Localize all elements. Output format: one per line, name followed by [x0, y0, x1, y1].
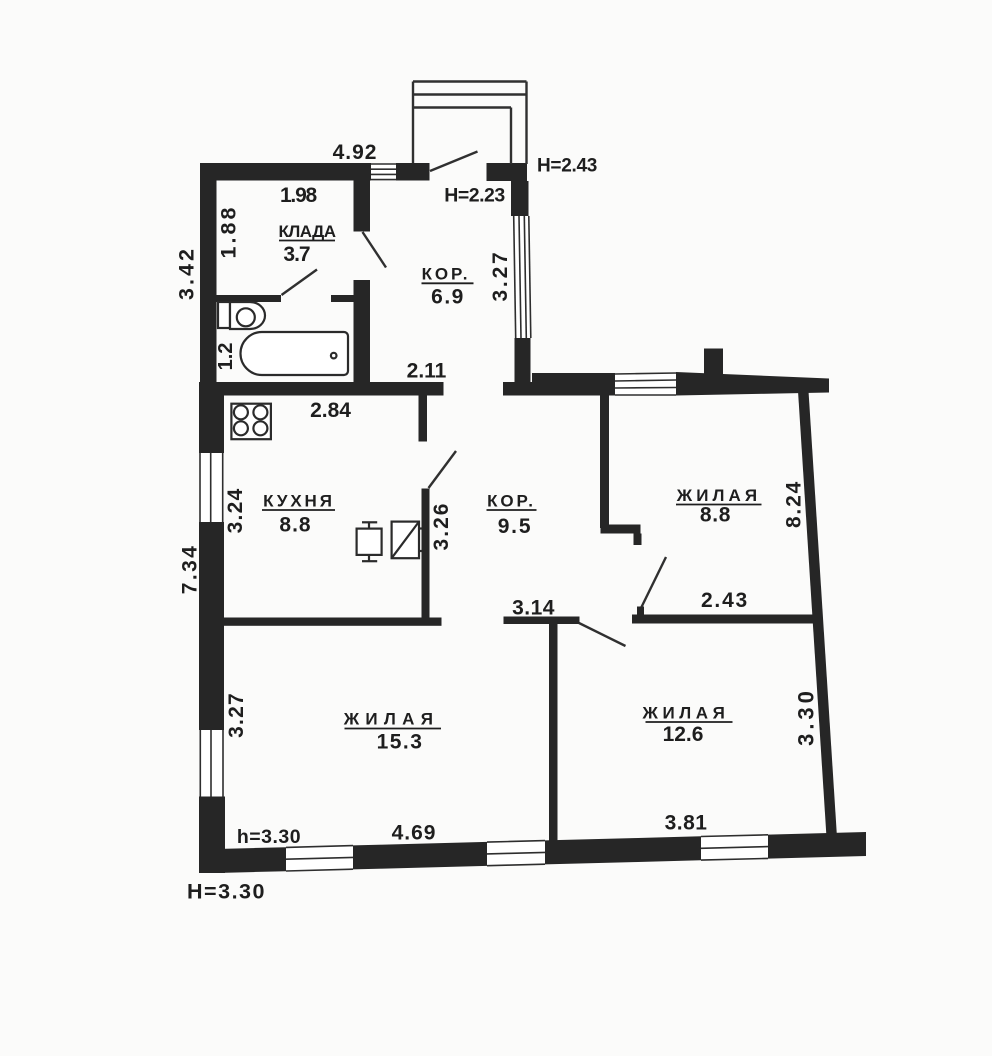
svg-text:h=3.30: h=3.30 — [237, 826, 301, 848]
svg-text:12.6: 12.6 — [663, 723, 704, 746]
svg-text:3.42: 3.42 — [175, 246, 199, 300]
svg-text:3.7: 3.7 — [283, 243, 310, 266]
svg-text:ЖИЛАЯ: ЖИЛАЯ — [676, 486, 762, 505]
svg-text:8.8: 8.8 — [279, 513, 311, 536]
svg-text:H=2.43: H=2.43 — [537, 156, 597, 177]
svg-text:15.3: 15.3 — [377, 731, 424, 754]
svg-text:6.9: 6.9 — [431, 286, 465, 309]
svg-text:КЛАДА: КЛАДА — [278, 222, 335, 241]
svg-text:3.26: 3.26 — [430, 502, 453, 551]
svg-text:1.2: 1.2 — [215, 343, 237, 371]
svg-text:3.14: 3.14 — [512, 596, 555, 619]
svg-text:ЖИЛАЯ: ЖИЛАЯ — [641, 704, 729, 723]
svg-text:3.81: 3.81 — [665, 812, 708, 835]
svg-text:3.24: 3.24 — [224, 488, 247, 534]
svg-text:3.30: 3.30 — [794, 687, 819, 746]
svg-text:1.88: 1.88 — [217, 205, 241, 259]
svg-text:2.43: 2.43 — [701, 589, 749, 612]
svg-text:1.98: 1.98 — [280, 184, 318, 207]
svg-text:H=2.23: H=2.23 — [444, 185, 505, 207]
svg-text:КОР.: КОР. — [487, 492, 536, 511]
svg-text:2.84: 2.84 — [310, 399, 351, 422]
svg-text:ЖИЛАЯ: ЖИЛАЯ — [343, 710, 440, 729]
svg-text:8.8: 8.8 — [700, 504, 731, 527]
svg-text:4.69: 4.69 — [392, 821, 437, 844]
svg-text:2.11: 2.11 — [407, 360, 447, 383]
svg-text:3.27: 3.27 — [225, 692, 248, 738]
svg-text:7.34: 7.34 — [179, 544, 202, 594]
svg-text:9.5: 9.5 — [498, 515, 533, 538]
svg-text:8.24: 8.24 — [783, 480, 806, 528]
svg-text:4.92: 4.92 — [333, 141, 378, 164]
svg-text:КУХНЯ: КУХНЯ — [263, 492, 335, 511]
svg-text:3.27: 3.27 — [489, 249, 512, 301]
svg-text:КОР.: КОР. — [422, 265, 471, 284]
svg-text:H=3.30: H=3.30 — [187, 880, 266, 904]
